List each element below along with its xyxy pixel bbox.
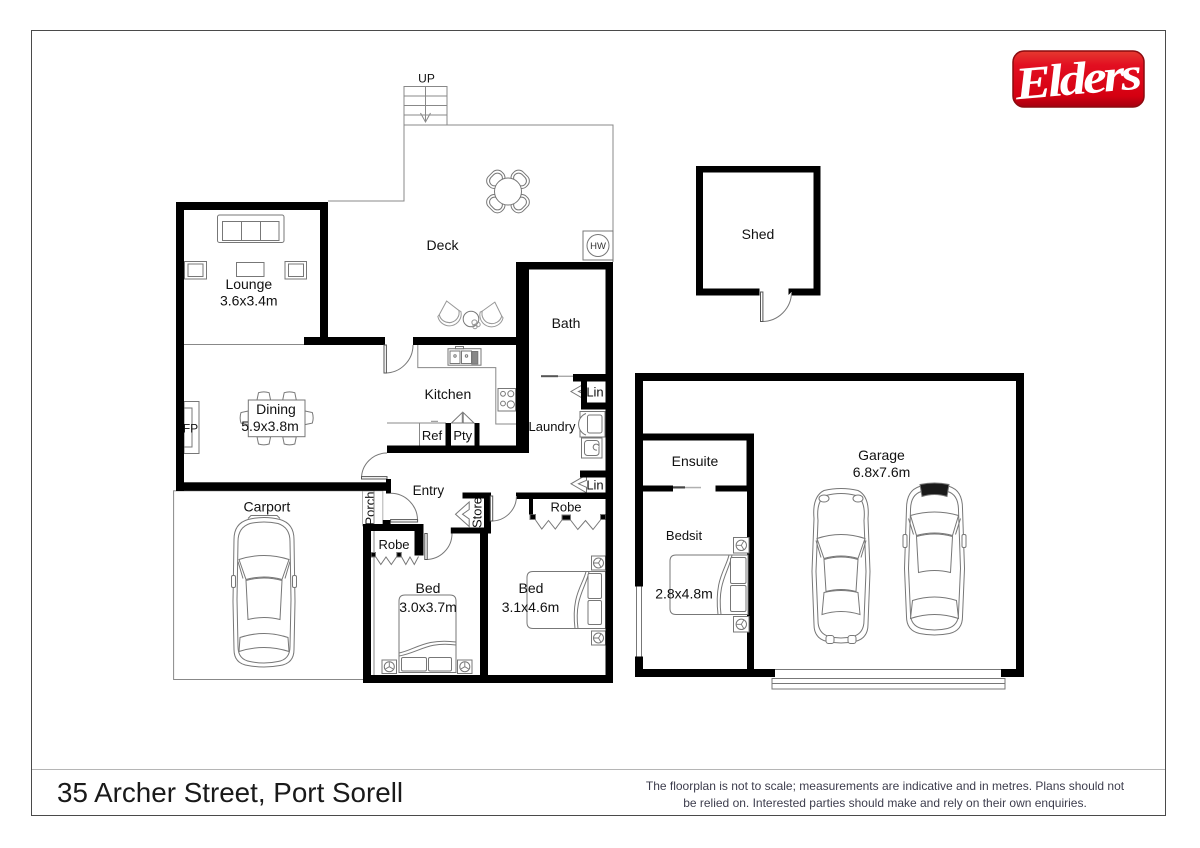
svg-text:Pty: Pty <box>453 428 472 443</box>
svg-text:Robe: Robe <box>378 537 409 552</box>
svg-text:Shed: Shed <box>742 226 775 242</box>
svg-text:Bed: Bed <box>519 580 544 596</box>
svg-text:Carport: Carport <box>244 499 291 515</box>
svg-text:Lounge: Lounge <box>225 276 272 292</box>
svg-text:Robe: Robe <box>550 500 581 515</box>
svg-text:Garage: Garage <box>858 447 905 463</box>
svg-text:Bedsit: Bedsit <box>666 528 703 543</box>
svg-text:Deck: Deck <box>427 237 460 253</box>
svg-text:UP: UP <box>418 72 435 86</box>
svg-text:HW: HW <box>590 241 606 252</box>
svg-text:3.6x3.4m: 3.6x3.4m <box>220 293 278 309</box>
svg-text:Lin: Lin <box>586 385 603 400</box>
svg-text:Dining: Dining <box>256 401 296 417</box>
svg-text:Ensuite: Ensuite <box>672 453 719 469</box>
svg-text:Entry: Entry <box>413 483 445 498</box>
svg-text:Laundry: Laundry <box>529 419 576 434</box>
svg-text:Kitchen: Kitchen <box>425 386 472 402</box>
svg-text:Store: Store <box>470 497 485 528</box>
svg-text:Porch: Porch <box>363 492 378 526</box>
svg-text:6.8x7.6m: 6.8x7.6m <box>853 464 911 480</box>
svg-text:Lin: Lin <box>586 478 603 493</box>
svg-text:Bath: Bath <box>552 315 581 331</box>
svg-text:2.8x4.8m: 2.8x4.8m <box>655 586 713 602</box>
svg-text:Ref: Ref <box>422 428 443 443</box>
svg-text:5.9x3.8m: 5.9x3.8m <box>241 418 299 434</box>
svg-text:Bed: Bed <box>416 580 441 596</box>
svg-text:3.0x3.7m: 3.0x3.7m <box>399 599 457 615</box>
svg-text:3.1x4.6m: 3.1x4.6m <box>502 599 560 615</box>
svg-text:FP: FP <box>183 422 198 436</box>
